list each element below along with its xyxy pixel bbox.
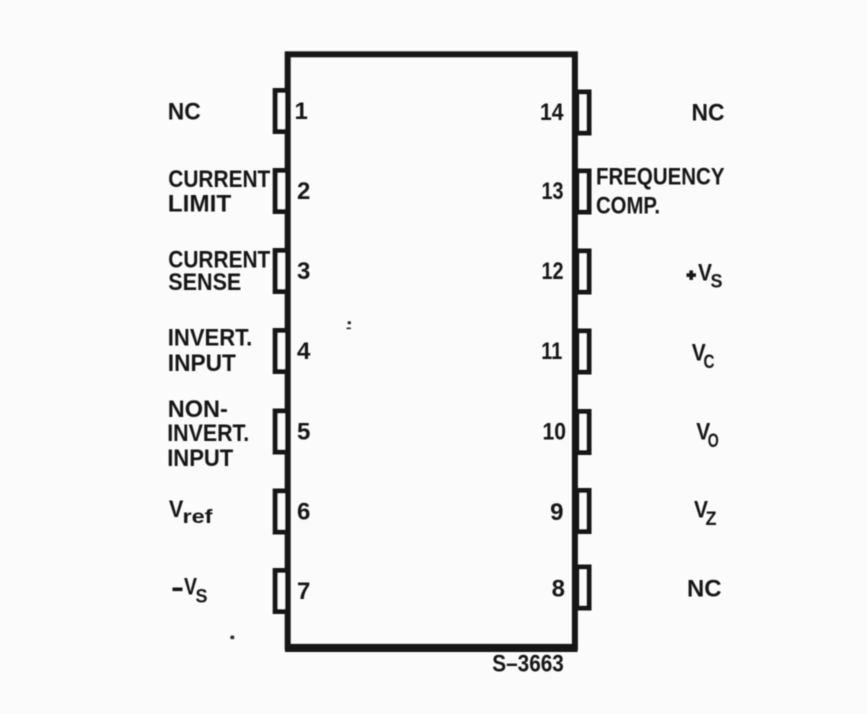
svg-text:14: 14 bbox=[540, 99, 564, 126]
svg-text:LIMIT: LIMIT bbox=[168, 191, 232, 218]
svg-text:SENSE: SENSE bbox=[168, 269, 241, 296]
svg-text:4: 4 bbox=[297, 338, 311, 365]
svg-text:9: 9 bbox=[550, 499, 563, 526]
svg-text:1: 1 bbox=[295, 98, 308, 125]
svg-text:11: 11 bbox=[541, 338, 562, 365]
svg-text:2: 2 bbox=[297, 178, 310, 205]
svg-text:7: 7 bbox=[297, 578, 310, 605]
svg-text:O: O bbox=[708, 431, 719, 452]
svg-text:CURRENT: CURRENT bbox=[168, 166, 270, 193]
svg-text:S: S bbox=[196, 587, 208, 608]
svg-text:10: 10 bbox=[543, 419, 567, 446]
svg-text:NC: NC bbox=[168, 99, 201, 126]
svg-text:INVERT.: INVERT. bbox=[167, 420, 249, 447]
svg-text:5: 5 bbox=[297, 419, 310, 446]
svg-text:ref: ref bbox=[183, 507, 214, 528]
svg-text:INVERT.: INVERT. bbox=[168, 324, 253, 351]
svg-text:COMP.: COMP. bbox=[596, 193, 660, 220]
svg-text:INPUT: INPUT bbox=[168, 350, 236, 377]
svg-text:3: 3 bbox=[297, 258, 310, 285]
svg-text:13: 13 bbox=[542, 178, 564, 205]
svg-text:C: C bbox=[704, 352, 715, 373]
svg-text:INPUT: INPUT bbox=[167, 445, 233, 472]
svg-text:FREQUENCY: FREQUENCY bbox=[596, 164, 725, 191]
svg-text:12: 12 bbox=[542, 258, 564, 285]
svg-text:Z: Z bbox=[706, 509, 717, 530]
svg-text:6: 6 bbox=[297, 499, 310, 526]
svg-text:8: 8 bbox=[552, 576, 565, 603]
svg-text:V: V bbox=[169, 496, 184, 523]
svg-text:S–3663: S–3663 bbox=[492, 651, 564, 678]
svg-text:S: S bbox=[711, 272, 723, 293]
svg-text:NC: NC bbox=[687, 576, 722, 603]
svg-text:NC: NC bbox=[692, 100, 725, 127]
svg-text:NON-: NON- bbox=[168, 396, 228, 423]
